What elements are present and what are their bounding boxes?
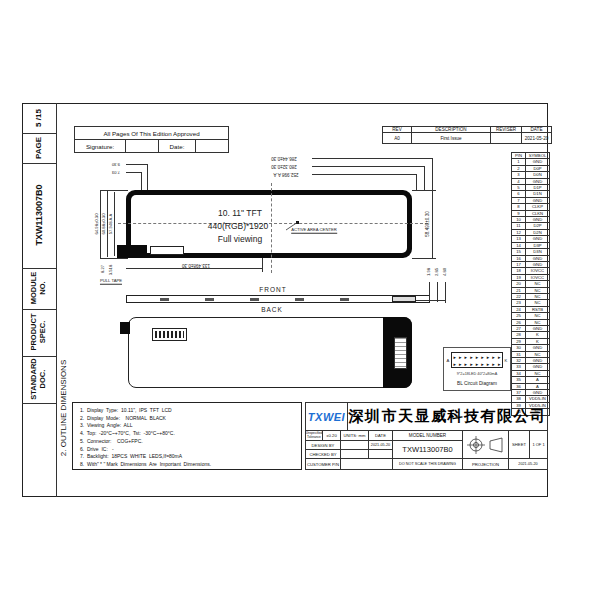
back-connector [394, 337, 407, 369]
dim-ext-right-bot [412, 258, 436, 259]
footer-date: 2021-05-20 [518, 462, 537, 466]
dim-line-top1 [312, 158, 432, 159]
led-symbol: ▸ [454, 361, 457, 367]
do-not-scale-label: DO NOT SCALE THIS DRAWING [399, 462, 456, 466]
pull-tape-label: PULL TAPE [100, 278, 122, 285]
dim-right1: 58.490±0.30 [425, 211, 430, 237]
projection-label: PROJECTION [472, 462, 499, 467]
sheet-label: SHEET [512, 442, 526, 447]
side-view-seg3 [250, 298, 259, 301]
sidebar-div1 [22, 133, 56, 134]
note-line: 5. Connector: COG+FPC. [80, 438, 301, 446]
side-view [126, 295, 430, 303]
customer-pn-cell: CUSTOMER P/N [305, 458, 341, 470]
back-label-sticker-text [155, 331, 184, 338]
symbol-header: SYMBOL [526, 153, 550, 159]
sidebar-div6 [22, 403, 56, 404]
bl-title-text: BL Circuit Diagram [457, 381, 497, 386]
notes-list: 1. Display Type: 10.11", IPS TFT LCD2. D… [73, 403, 301, 469]
dim-ext-top2 [424, 166, 425, 190]
pin-table-body: 1GND2D0P3D0N4GND5D1P6D1N7GND8CLKP9CLKN10… [512, 159, 550, 415]
panel-viewing-text: Full viewing [218, 234, 262, 244]
side-view-seg1 [160, 298, 169, 301]
note-line: 1. Display Type: 10.11", IPS TFT LCD [80, 407, 301, 415]
revision-row: A0 First Issue 2021-05-20 [383, 133, 552, 144]
thickness-ext1 [429, 282, 430, 300]
sidebar-cell-module-no: MODULE NO. [30, 272, 47, 305]
sidebar-cell-page-number: 5 /15 [34, 109, 43, 127]
led-symbol: ▸ [481, 354, 484, 360]
dim-bottom-left2: 3.518 [109, 265, 114, 275]
sheet-label-cell: SHEET [508, 430, 530, 459]
note-line: 8. With" * " Mark Dimensions Are Importa… [80, 461, 301, 469]
dim-top1: 286.44±0.30 [271, 156, 297, 161]
model-number-label: MODEL NUMBER [409, 433, 446, 438]
dim-thickness2: 2.85 [435, 268, 440, 276]
led-symbol: ▸ [465, 354, 468, 360]
revision-table: REV DESCRIPTION REVISER DATE A0 First Is… [382, 126, 552, 144]
dim-thickness3: 4.80 [443, 268, 448, 276]
sidebar-div3 [22, 268, 56, 269]
dim-left1: 64.98±0.30 [95, 214, 100, 235]
front-label: FRONT [259, 286, 286, 293]
front-view-active-area [131, 195, 407, 253]
design-by-label: DESIGN BY [312, 443, 335, 448]
pin-table: PIN SYMBOL 1GND2D0P3D0N4GND5D1P6D1N7GND8… [511, 152, 550, 416]
sheet-value-cell: 1 OF 1 [529, 430, 548, 459]
projection-symbol-icon [466, 435, 506, 455]
led-symbol: ▸ [459, 354, 462, 360]
active-area-center-label: ACTIVE AREA CENTER [291, 227, 337, 234]
dim-left2: 60.88±0.30 [102, 214, 107, 235]
side-view-seg5 [340, 298, 349, 301]
checked-by-label: CHECKED BY [309, 452, 336, 457]
dim-line-bottom1 [126, 268, 262, 269]
dim-ext-left-bot [100, 258, 128, 259]
note-line: 7. Backlight: 18PCS WHITE LEDS,If=80mA [80, 453, 301, 461]
dim-line-top3 [312, 174, 416, 175]
tolerance-label: Unspecified Tolerance [306, 432, 323, 439]
txwei-logo: TXWEI [308, 411, 345, 423]
signature-label: Signature: [75, 140, 126, 153]
led-symbol: ▸ [492, 361, 495, 367]
led-symbol: ▸ [487, 354, 490, 360]
sidebar-cell-page: PAGE [34, 137, 43, 159]
front-label-outline [150, 246, 184, 255]
sidebar-right-border [56, 103, 57, 497]
drawing-sheet: 5 /15 PAGE TXW113007B0 MODULE NO. PRODUC… [0, 0, 600, 600]
note-line: 4. Top: -20°C~+70°C, Tst: -30°C~+80°C. [80, 430, 301, 438]
units-label: UNITS: mm [344, 433, 366, 438]
led-symbol: ▸ [476, 354, 479, 360]
sidebar-div2 [22, 163, 56, 164]
back-pull-tab [120, 322, 130, 334]
dim-ext-topleft1 [147, 164, 148, 190]
date-label: Date: [159, 140, 196, 153]
dim-top-left1: 9.30 [112, 162, 120, 167]
thickness-ext2 [437, 282, 438, 302]
sidebar-cell-product-spec: PRODUCT SPEC. [30, 313, 47, 350]
led-row: ▸▸▸▸▸▸▸▸▸ [453, 361, 501, 367]
dim-ext-top3 [416, 174, 417, 190]
section-title: 2. OUTLINE DIMENSIONS [59, 360, 68, 456]
company-cell: 深圳市天显威科技有限公司 [347, 402, 548, 431]
thickness-tick [416, 300, 446, 301]
model-number-value-cell: TXW113007B0 [392, 440, 463, 459]
dim-line-topleft2 [126, 172, 142, 173]
dim-ext-top1 [432, 158, 433, 190]
sidebar-cell-standard-doc: STANDARD DOC. [30, 358, 47, 400]
dim-top-left2: 7.03 [112, 170, 120, 175]
projection-label-cell: PROJECTION [462, 458, 509, 470]
sidebar-div4 [22, 309, 56, 310]
dim-line-right1 [432, 190, 433, 258]
led-symbol: ▸ [459, 361, 462, 367]
approval-table: All Pages Of This Edition Approved Signa… [74, 126, 229, 153]
led-array-box: ▸▸▸▸▸▸▸▸▸ ▸▸▸▸▸▸▸▸▸ [451, 352, 503, 368]
sidebar-cell-module-number: TXW113007B0 [34, 184, 44, 245]
note-line: 6. Drive IC: - [80, 446, 301, 454]
led-symbol: ▸ [465, 361, 468, 367]
led-symbol: ▸ [454, 354, 457, 360]
notes-box: 1. Display Type: 10.11", IPS TFT LCD2. D… [72, 402, 302, 470]
note-line: 2. Display Mode: NORMAL BLACK [80, 415, 301, 423]
rev-value: A0 [383, 133, 412, 144]
projection-symbol-cell [462, 430, 509, 459]
dim-bottom1: 133.498±0.30 [182, 263, 210, 268]
tb-date-label: DATE [375, 433, 386, 438]
description-value: First Issue [412, 133, 491, 144]
date-field [196, 140, 229, 153]
company-name: 深圳市天显威科技有限公司 [349, 407, 547, 426]
side-view-connector [392, 296, 416, 302]
side-view-seg4 [295, 298, 304, 301]
led-symbol: ▸ [481, 361, 484, 367]
dim-line-top2 [312, 166, 424, 167]
side-view-seg2 [205, 298, 214, 301]
led-symbol: ▸ [476, 361, 479, 367]
customer-pn-value-cell [340, 458, 393, 470]
pull-tape-tab [117, 245, 147, 258]
vertical-centerline [271, 183, 272, 273]
dim-top2: 280.32±0.30 [271, 164, 297, 169]
model-number-value: TXW113007B0 [402, 445, 452, 454]
note-line: 3. Viewing Angle: ALL [80, 422, 301, 430]
dim-thickness1: 1.98 [427, 268, 432, 276]
signature-field [126, 140, 159, 153]
approval-title: All Pages Of This Edition Approved [75, 127, 229, 140]
panel-resolution-text: 440(RGB)*1920 [208, 221, 268, 231]
dim-ext-left-top [100, 190, 128, 191]
tolerance-value: ±0.20 [326, 433, 336, 438]
led-symbol: ▸ [498, 361, 501, 367]
logo-cell: TXWEI [305, 402, 348, 431]
bl-spec-text: 9*2=18LED 40*2=80mA [457, 372, 498, 376]
led-symbol: ▸ [498, 354, 501, 360]
bl-anode-label: A [447, 358, 450, 363]
date-value: 2021-05-20 [522, 133, 552, 144]
led-symbol: ▸ [470, 361, 473, 367]
footer-date-cell: 2021-05-20 [508, 458, 548, 470]
dim-left3: 57.948 A.A [109, 214, 114, 235]
dim-line-topleft1 [126, 164, 148, 165]
led-symbol: ▸ [492, 354, 495, 360]
dim-ext-topleft2 [141, 172, 142, 190]
back-label: BACK [261, 306, 283, 313]
led-row: ▸▸▸▸▸▸▸▸▸ [453, 354, 501, 360]
dim-ext-bottom1 [262, 258, 263, 272]
dim-top3: 252.998 A.A [273, 172, 298, 177]
panel-size-text: 10. 11" TFT [218, 208, 262, 218]
dim-ext-right-top [412, 190, 436, 191]
do-not-scale-cell: DO NOT SCALE THIS DRAWING [392, 458, 463, 470]
tb-date-value: 2021-05-20 [371, 443, 390, 447]
sheet-value: 1 OF 1 [532, 442, 544, 447]
reviser-value [491, 133, 522, 144]
sidebar-div5 [22, 356, 56, 357]
led-symbol: ▸ [470, 354, 473, 360]
horizontal-centerline [118, 223, 428, 224]
led-symbol: ▸ [487, 361, 490, 367]
pin-row: 19IOVCC [512, 274, 550, 280]
dim-bottom-left1: 8.27 [101, 265, 106, 273]
customer-pn-label: CUSTOMER P/N [307, 462, 339, 467]
dim-line-left3 [114, 192, 115, 256]
bl-cathode-label: K [505, 358, 508, 363]
pin-row: 18IOVCC [512, 268, 550, 274]
